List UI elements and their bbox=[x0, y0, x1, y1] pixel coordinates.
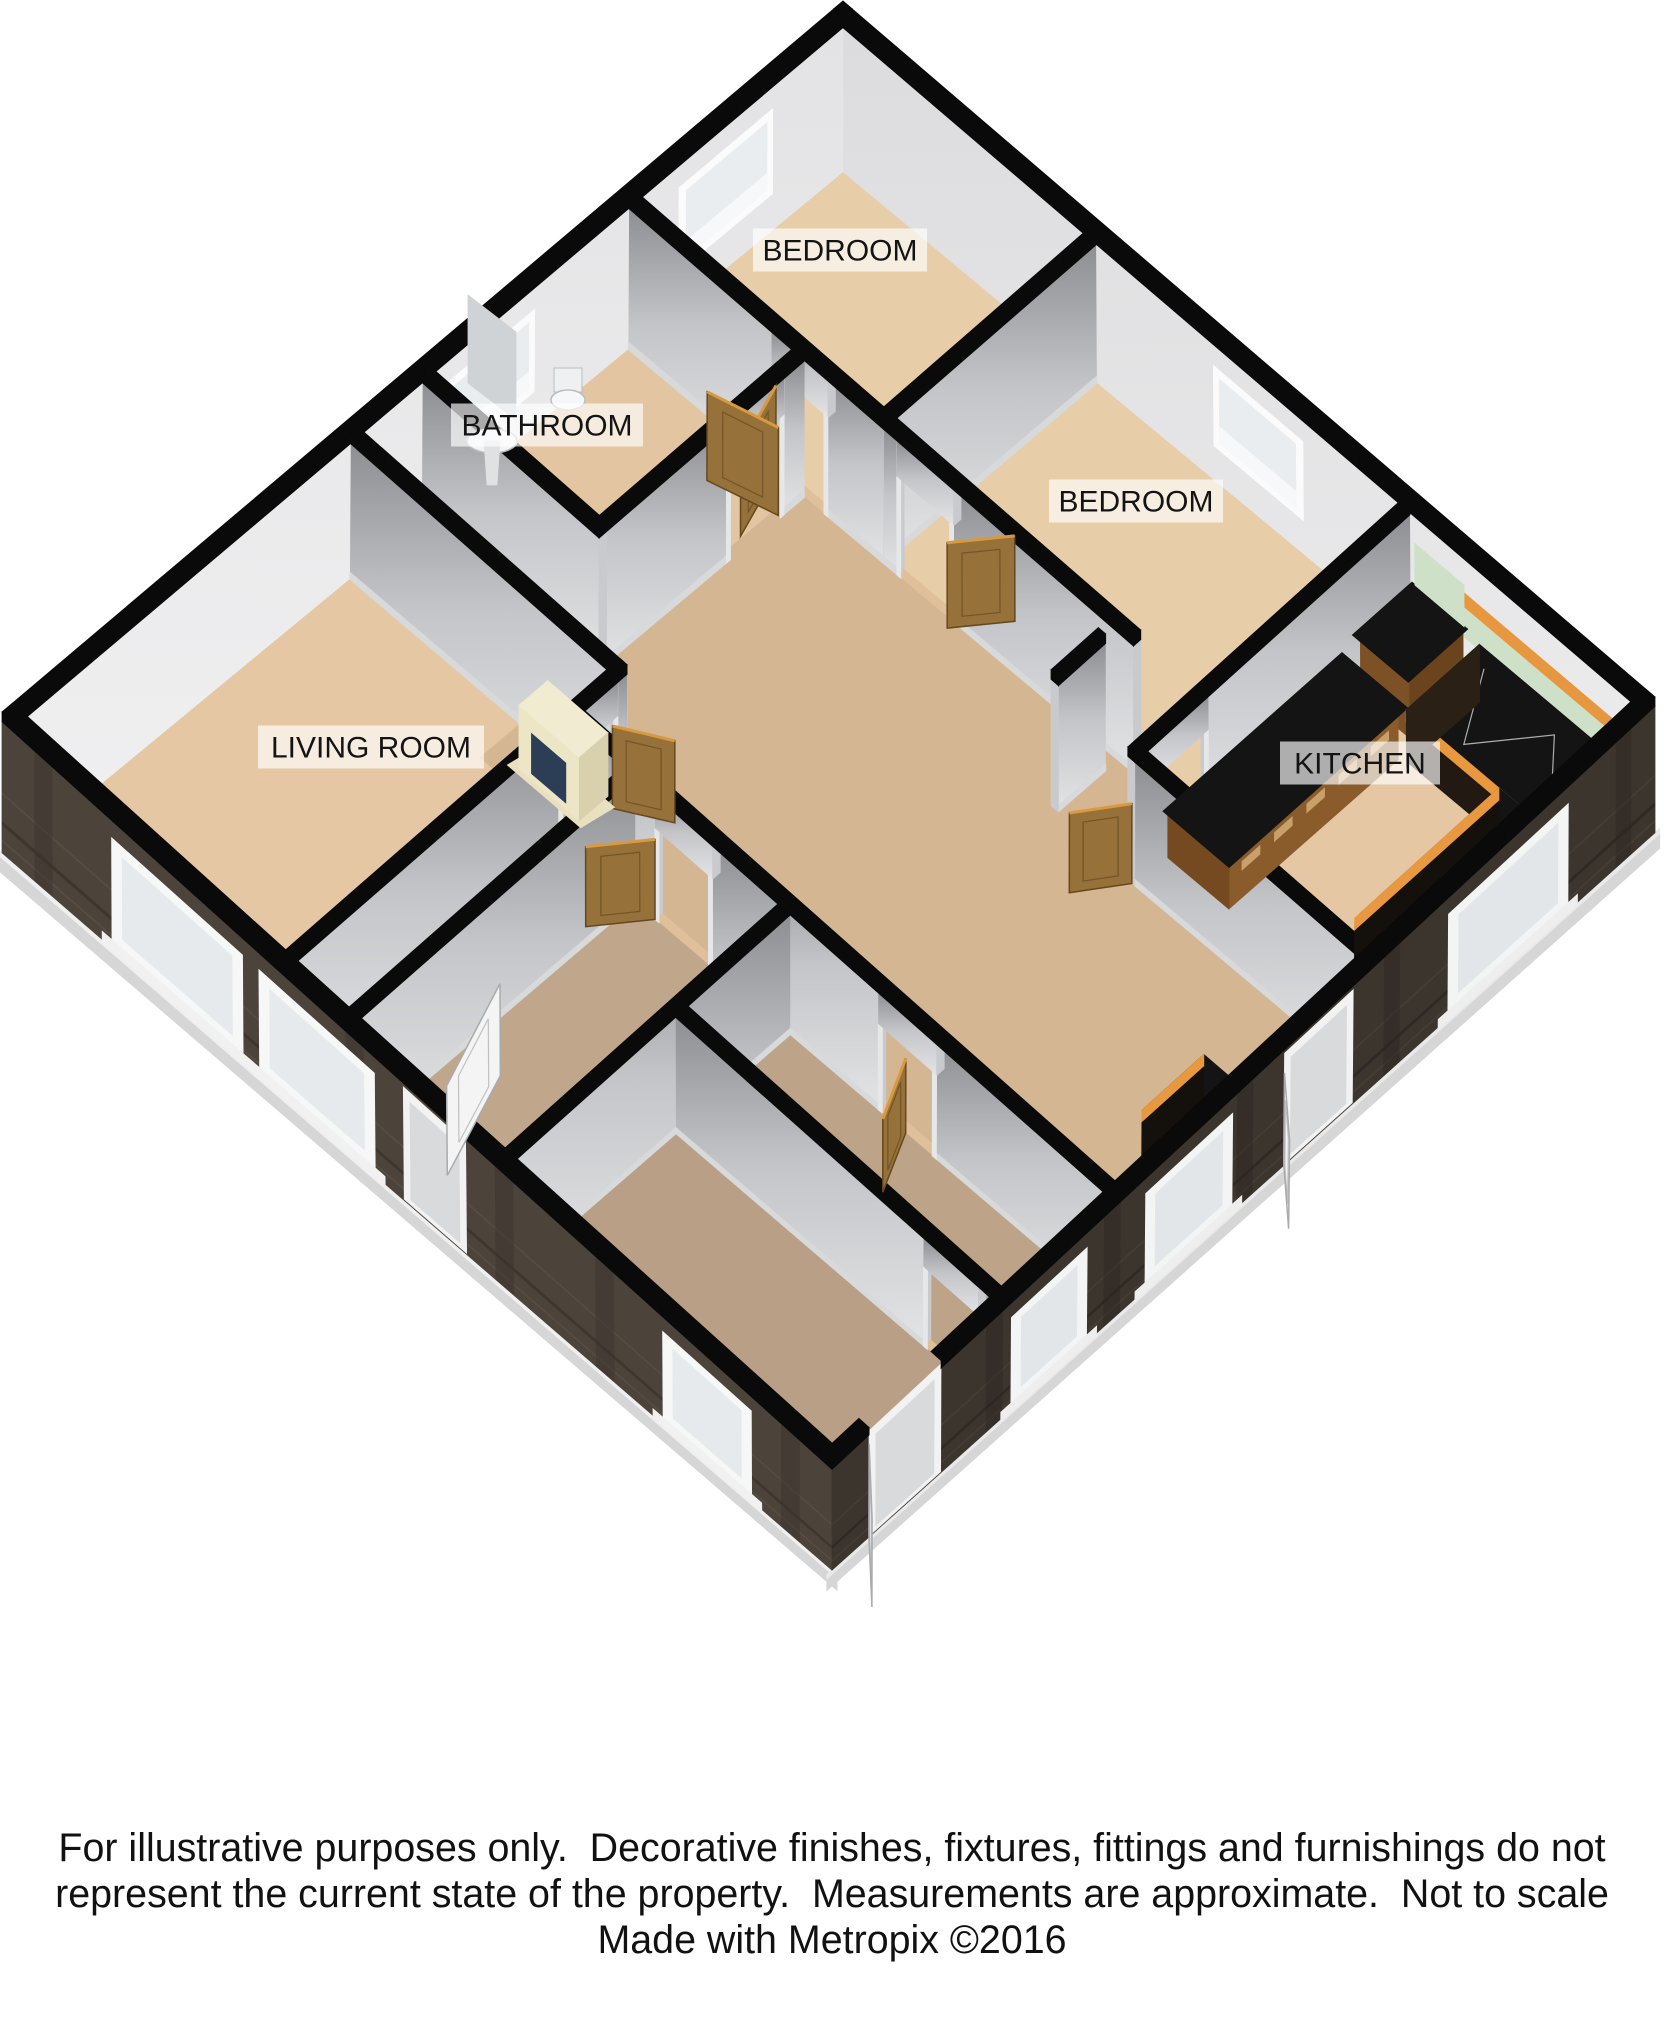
svg-text:BEDROOM: BEDROOM bbox=[762, 235, 917, 268]
svg-text:BATHROOM: BATHROOM bbox=[461, 410, 632, 443]
svg-text:LIVING ROOM: LIVING ROOM bbox=[271, 732, 471, 765]
svg-text:represent the current state of: represent the current state of the prope… bbox=[55, 1872, 1609, 1916]
svg-text:For illustrative purposes only: For illustrative purposes only. Decorati… bbox=[58, 1826, 1605, 1870]
svg-text:BEDROOM: BEDROOM bbox=[1058, 486, 1213, 519]
svg-text:Made with Metropix ©2016: Made with Metropix ©2016 bbox=[597, 1918, 1066, 1962]
svg-text:KITCHEN: KITCHEN bbox=[1294, 748, 1426, 781]
